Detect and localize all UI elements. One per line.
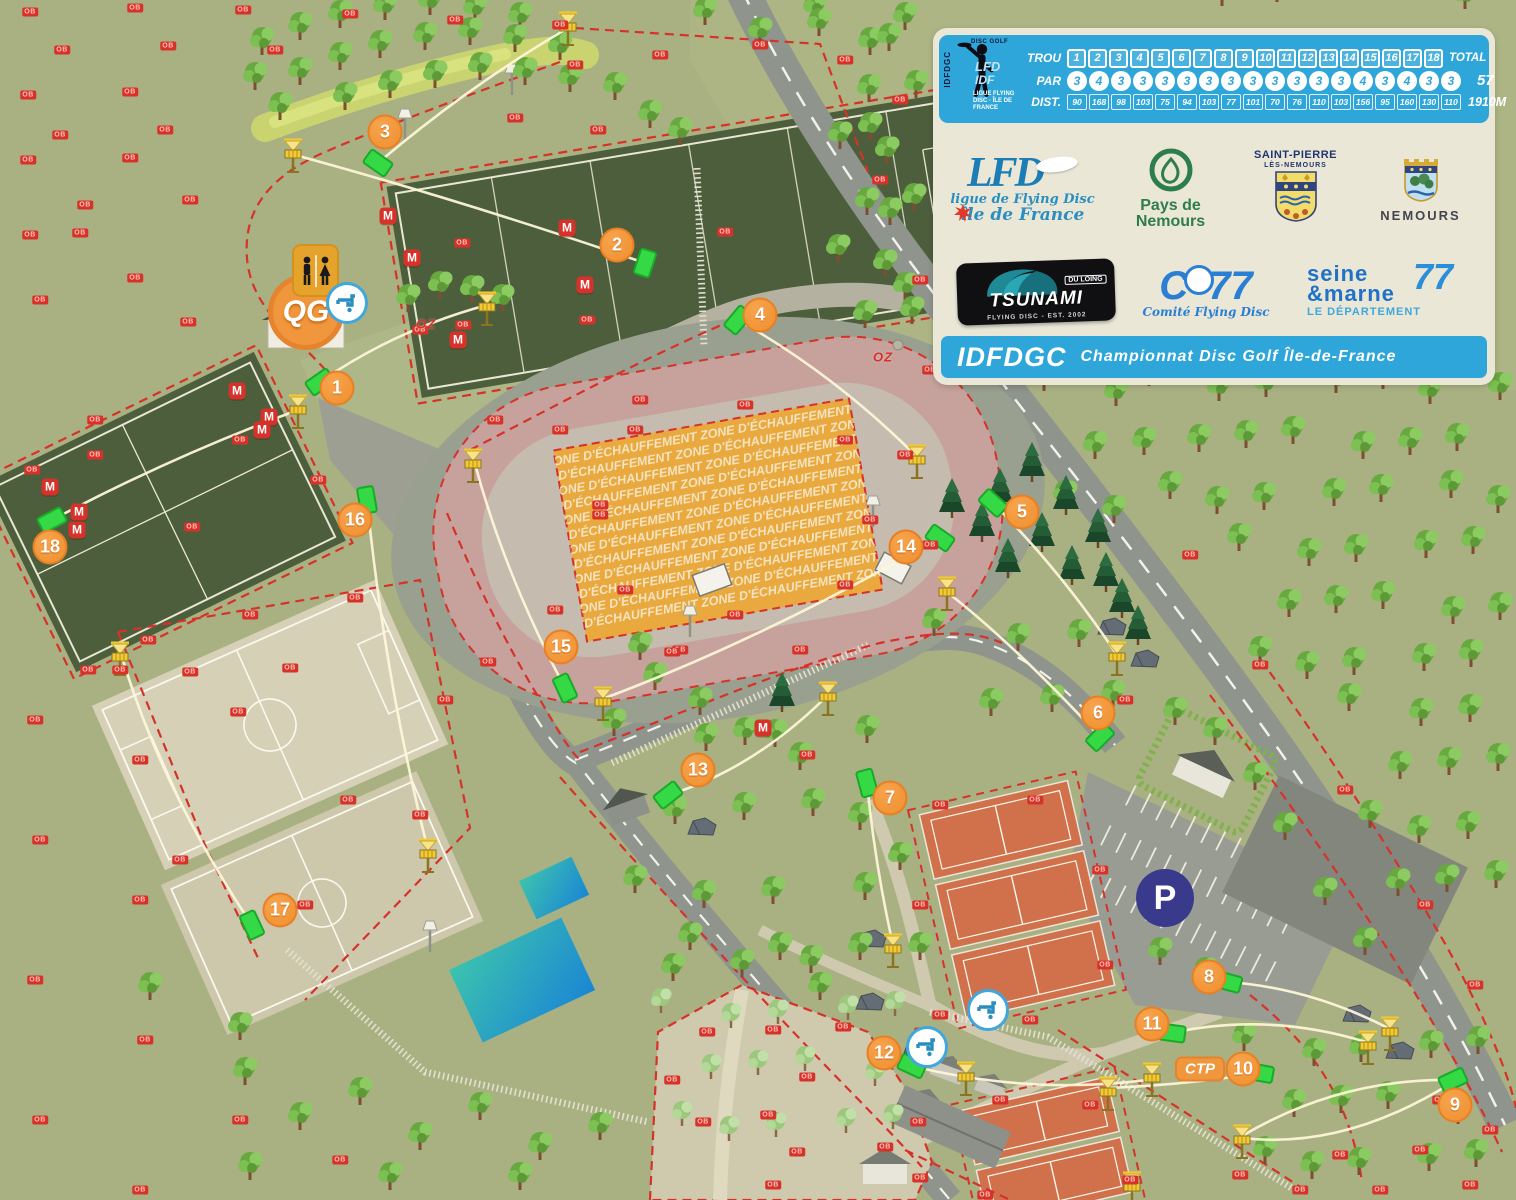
- par-cell: 3: [1221, 71, 1241, 91]
- dist-cell: 101: [1243, 94, 1263, 110]
- trou-cell: 1: [1067, 49, 1086, 68]
- dist-cell: 168: [1089, 94, 1109, 110]
- parking-badge: P: [1136, 869, 1194, 927]
- total-label: TOTAL: [1449, 52, 1486, 64]
- trou-cell: 7: [1193, 49, 1212, 68]
- par-cell: 3: [1243, 71, 1263, 91]
- trou-cell: 12: [1298, 49, 1317, 68]
- banner-title: Championnat Disc Golf Île-de-France: [1081, 348, 1397, 366]
- par-cell: 3: [1067, 71, 1087, 91]
- par-cell: 4: [1397, 71, 1417, 91]
- trou-cell: 17: [1403, 49, 1422, 68]
- sm-77: 77: [1413, 256, 1453, 298]
- par-cell: 3: [1265, 71, 1285, 91]
- par-cell: 3: [1375, 71, 1395, 91]
- water-tap-icon: [326, 282, 368, 324]
- c77-num: 77: [1208, 264, 1253, 308]
- c77-script: Comité Flying Disc: [1141, 306, 1271, 319]
- hole-marker-11: 11: [1135, 1007, 1170, 1042]
- trou-cell: 13: [1319, 49, 1338, 68]
- par-cell: 3: [1199, 71, 1219, 91]
- info-panel: IDFDGC DISC GOLF LFD IDF LIGUE FLYINGDIS…: [933, 28, 1495, 385]
- hole-marker-4: 4: [743, 298, 778, 333]
- dist-cell: 103: [1199, 94, 1219, 110]
- nemours-crest: [1398, 153, 1444, 205]
- trou-cell: 6: [1172, 49, 1191, 68]
- restroom-pictogram: [298, 251, 334, 291]
- hole-marker-9: 9: [1438, 1088, 1473, 1123]
- banner-org: IDFDGC: [957, 342, 1067, 373]
- dist-label: DIST.: [1019, 95, 1065, 109]
- org-top-text: DISC GOLF: [971, 39, 1008, 45]
- stp-line2: LÈS-NEMOURS: [1244, 161, 1348, 170]
- dist-cell: 160: [1397, 94, 1417, 110]
- par-cell: 3: [1331, 71, 1351, 91]
- hole-marker-14: 14: [889, 530, 924, 565]
- hole-marker-16: 16: [338, 503, 373, 538]
- pdn-line1: Pays de: [1111, 198, 1231, 214]
- nemours-name: NEMOURS: [1361, 208, 1481, 223]
- hole-marker-3: 3: [368, 115, 403, 150]
- par-row: PAR 343333333333343433 57: [1019, 71, 1506, 91]
- league-logo: IDFDGC DISC GOLF LFD IDF LIGUE FLYINGDIS…: [945, 37, 1019, 121]
- trou-cell: 16: [1382, 49, 1401, 68]
- nemours-logo: NEMOURS: [1361, 153, 1481, 223]
- dist-cell: 103: [1133, 94, 1153, 110]
- total-dist: 1910M: [1468, 95, 1506, 109]
- lfd-logo: LFD ligue de Flying Disc île de France: [948, 153, 1098, 224]
- org-bottom-text: LIGUE FLYINGDISC · ÎLE DE FRANCE: [973, 91, 1019, 112]
- hole-marker-7: 7: [873, 781, 908, 816]
- trou-cell: 15: [1361, 49, 1380, 68]
- hole-marker-13: 13: [681, 753, 716, 788]
- sm-sub: LE DÉPARTEMENT: [1307, 304, 1477, 320]
- hole-marker-18: 18: [33, 530, 68, 565]
- par-cell: 3: [1155, 71, 1175, 91]
- par-label: PAR: [1019, 74, 1065, 88]
- trou-cell: 3: [1109, 49, 1128, 68]
- star-icon: [954, 204, 972, 222]
- hole-marker-10: 10: [1226, 1052, 1261, 1087]
- par-cell: 4: [1353, 71, 1373, 91]
- c77-logo: C77 Comité Flying Disc: [1141, 265, 1271, 319]
- hole-marker-15: 15: [544, 630, 579, 665]
- hole-marker-1: 1: [320, 371, 355, 406]
- par-cell: 3: [1287, 71, 1307, 91]
- org-side-text: IDFDGC: [943, 51, 952, 88]
- dist-cell: 76: [1287, 94, 1307, 110]
- hole-marker-17: 17: [263, 893, 298, 928]
- stp-line1: SAINT-PIERRE: [1244, 150, 1348, 161]
- dist-row: DIST. 9016898103759410377101707611010315…: [1019, 94, 1506, 110]
- trou-cell: 8: [1214, 49, 1233, 68]
- trou-cell: 14: [1340, 49, 1359, 68]
- dist-cell: 130: [1419, 94, 1439, 110]
- scorecard: IDFDGC DISC GOLF LFD IDF LIGUE FLYINGDIS…: [939, 35, 1489, 123]
- pays-de-nemours-logo: Pays de Nemours: [1111, 146, 1231, 230]
- dist-cell: 77: [1221, 94, 1241, 110]
- hole-marker-5: 5: [1005, 495, 1040, 530]
- par-cell: 3: [1133, 71, 1153, 91]
- par-cell: 3: [1441, 71, 1461, 91]
- water-tap-icon: [967, 989, 1009, 1031]
- trou-row: TROU 123456789101112131415161718 TOTAL: [1019, 49, 1506, 68]
- dist-cell: 110: [1441, 94, 1461, 110]
- org-abbr-2: IDF: [975, 73, 994, 87]
- hole-marker-6: 6: [1081, 696, 1116, 731]
- par-cell: 4: [1089, 71, 1109, 91]
- par-cell: 3: [1419, 71, 1439, 91]
- dist-cell: 156: [1353, 94, 1373, 110]
- scorecard-table: TROU 123456789101112131415161718 TOTAL P…: [1019, 49, 1506, 110]
- org-abbr-1: LFD: [975, 59, 1000, 74]
- sponsor-logos-row-1: LFD ligue de Flying Disc île de France P…: [941, 130, 1487, 246]
- dist-cell: 94: [1177, 94, 1197, 110]
- trou-label: TROU: [1019, 51, 1065, 65]
- sponsor-logos-row-2: DU LOING TSUNAMI FLYING DISC - EST. 2002…: [941, 246, 1487, 338]
- drop-ring-icon: [1147, 146, 1195, 194]
- dist-cell: 98: [1111, 94, 1131, 110]
- ctp-badge: CTP: [1175, 1057, 1225, 1082]
- dist-cell: 95: [1375, 94, 1395, 110]
- c77-abbr: C: [1159, 264, 1188, 308]
- hole-marker-2: 2: [600, 228, 635, 263]
- water-tap-icon: [906, 1026, 948, 1068]
- trou-cell: 4: [1130, 49, 1149, 68]
- lfd-abbr: LFD: [967, 150, 1042, 196]
- par-cell: 3: [1309, 71, 1329, 91]
- dist-cell: 103: [1331, 94, 1351, 110]
- hole-marker-8: 8: [1192, 960, 1227, 995]
- trou-cell: 5: [1151, 49, 1170, 68]
- trou-cell: 18: [1424, 49, 1443, 68]
- event-banner: IDFDGC Championnat Disc Golf Île-de-Fran…: [941, 336, 1487, 378]
- dist-cell: 75: [1155, 94, 1175, 110]
- pdn-line2: Nemours: [1111, 214, 1231, 230]
- seine-et-marne-logo: 77 seine &marne LE DÉPARTEMENT: [1291, 264, 1477, 320]
- dist-cell: 70: [1265, 94, 1285, 110]
- tsunami-logo: DU LOING TSUNAMI FLYING DISC - EST. 2002: [951, 261, 1121, 323]
- dist-cell: 110: [1309, 94, 1329, 110]
- trou-cell: 11: [1277, 49, 1296, 68]
- dist-cell: 90: [1067, 94, 1087, 110]
- saint-pierre-logo: SAINT-PIERRE LÈS-NEMOURS: [1244, 150, 1348, 227]
- trou-cell: 2: [1088, 49, 1107, 68]
- par-cell: 3: [1177, 71, 1197, 91]
- par-cell: 3: [1111, 71, 1131, 91]
- hole-marker-12: 12: [867, 1036, 902, 1071]
- total-par: 57: [1477, 72, 1494, 89]
- trou-cell: 10: [1256, 49, 1275, 68]
- tsunami-sub: DU LOING: [1064, 275, 1107, 285]
- saint-pierre-crest: [1274, 170, 1318, 222]
- trou-cell: 9: [1235, 49, 1254, 68]
